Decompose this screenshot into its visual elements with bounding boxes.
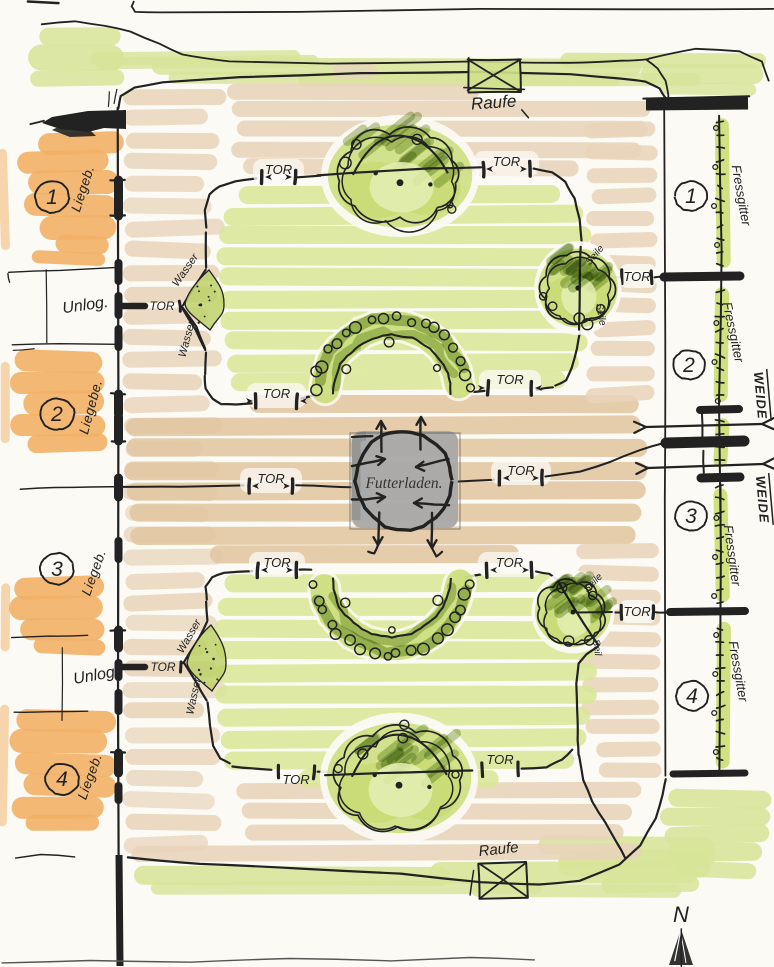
svg-text:4: 4 [686,685,698,708]
svg-text:2: 2 [50,403,63,426]
svg-text:TOR: TOR [493,154,520,169]
svg-text:TOR: TOR [263,386,290,401]
svg-text:TOR: TOR [265,162,292,177]
svg-text:2: 2 [682,354,695,377]
svg-text:TOR: TOR [257,471,284,486]
svg-text:3: 3 [685,505,697,528]
svg-text:TOR: TOR [150,660,175,674]
svg-text:TOR: TOR [486,752,513,767]
svg-text:TOR: TOR [623,269,650,284]
svg-text:3: 3 [51,558,63,581]
svg-text:Futterladen.: Futterladen. [364,475,442,492]
svg-text:TOR: TOR [496,555,523,570]
svg-text:N: N [673,902,689,927]
svg-text:1: 1 [46,186,58,209]
svg-text:TOR: TOR [149,299,174,313]
svg-text:1: 1 [685,185,697,208]
svg-text:4: 4 [56,768,68,791]
svg-text:Raufe: Raufe [470,91,517,113]
svg-text:TOR: TOR [507,463,534,478]
svg-text:TOR: TOR [282,772,309,787]
svg-text:TOR: TOR [263,555,290,570]
svg-text:TOR: TOR [623,604,650,619]
svg-text:TOR: TOR [496,372,523,387]
